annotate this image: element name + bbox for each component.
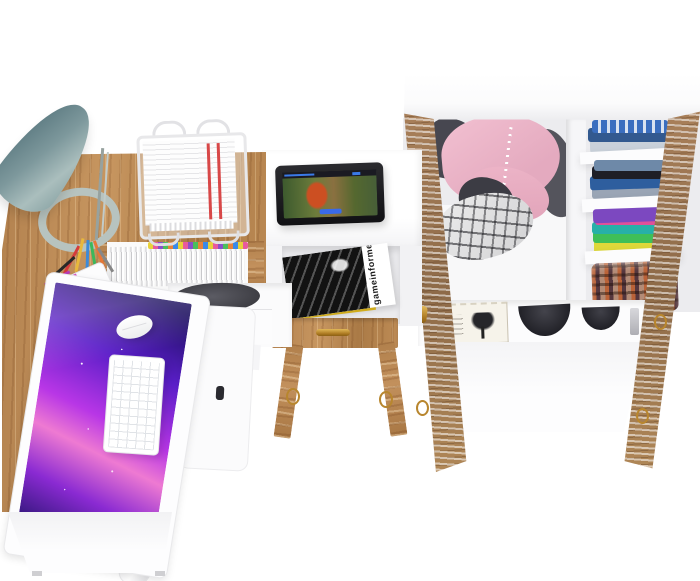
tablet — [275, 162, 385, 226]
tablet-player-topbar — [282, 169, 376, 178]
mouse-seam — [122, 323, 146, 331]
keyboard-keys — [108, 360, 160, 451]
monitor-port — [216, 386, 225, 400]
tablet-play-button — [320, 209, 342, 215]
tablet-screen — [282, 169, 378, 218]
side-table-leg-right — [378, 341, 408, 436]
desk-foot — [155, 571, 165, 576]
document-tray — [132, 116, 252, 250]
tray-foot — [208, 230, 240, 244]
leg-hook — [286, 388, 300, 405]
keyboard — [103, 354, 166, 456]
tablet-progress-knob — [352, 171, 360, 174]
magazine-cover-art — [282, 247, 370, 320]
product-render: gameinformer — [0, 0, 700, 581]
tray-papers — [143, 138, 238, 225]
side-table-drawer-handle — [316, 329, 350, 336]
tray-foot — [148, 232, 180, 246]
leg-hook — [379, 391, 393, 408]
pencil — [74, 238, 84, 272]
tablet-progress-bar — [284, 174, 314, 177]
desk-foot — [32, 571, 42, 576]
